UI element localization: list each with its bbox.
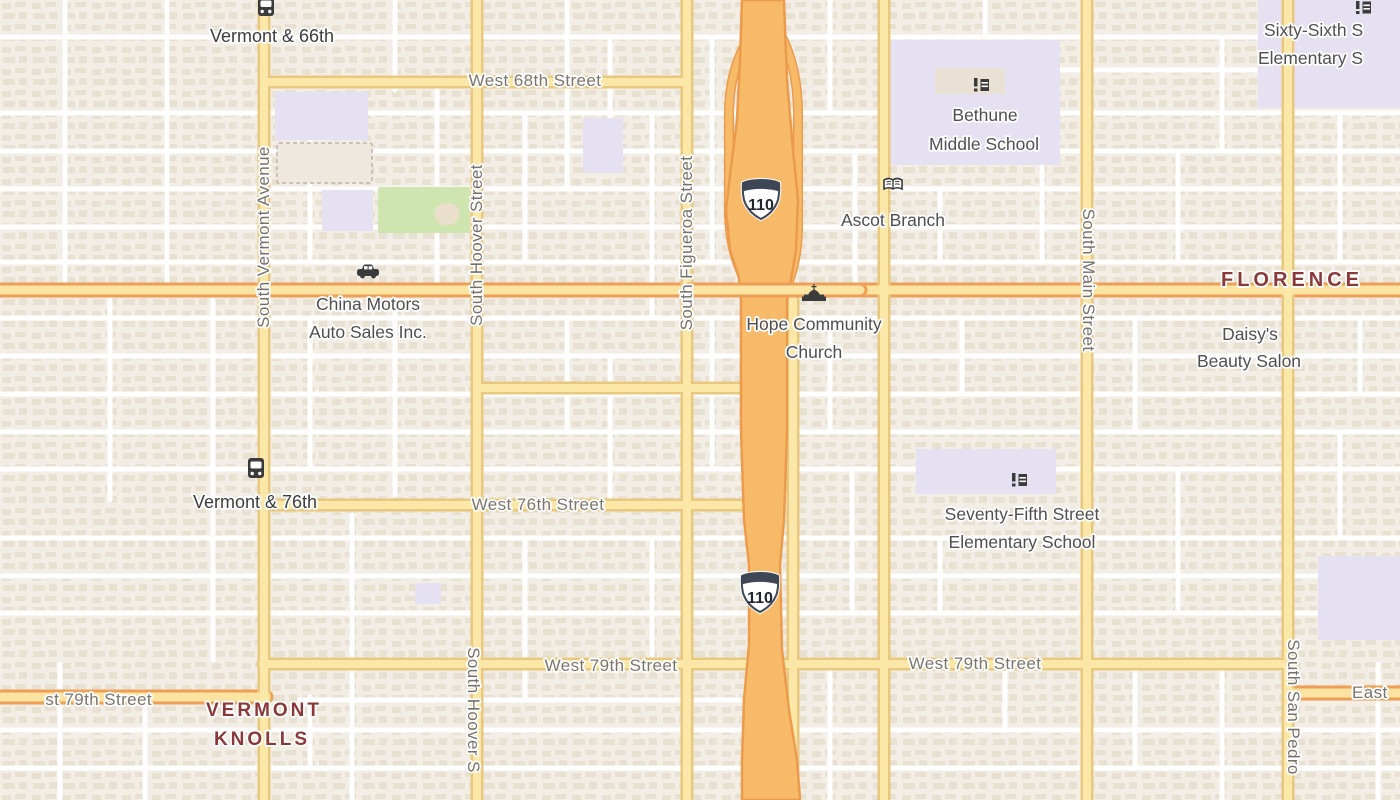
bus-icon xyxy=(258,0,274,16)
neighborhood-label-vermont-knolls-line1: VERMONT xyxy=(206,700,322,721)
street-label-west-79th-east: West 79th Street xyxy=(909,654,1042,673)
campus-area xyxy=(583,118,623,173)
street-label-south-san-pedro: South San Pedro xyxy=(1284,639,1303,774)
bus-icon xyxy=(248,458,264,478)
street-label-south-vermont: South Vermont Avenue xyxy=(254,146,273,328)
park-clearing xyxy=(434,203,460,225)
campus-area xyxy=(322,190,373,231)
poi-label-line2: Elementary School xyxy=(949,532,1096,552)
campus-area xyxy=(1318,556,1400,640)
poi-label-line1: Seventy-Fifth Street xyxy=(945,504,1100,524)
poi-label-line1: Sixty-Sixth S xyxy=(1264,20,1363,40)
transit-stop-label: Vermont & 66th xyxy=(210,26,334,46)
shield-route-number: 110 xyxy=(747,590,773,607)
street-label-south-main: South Main Street xyxy=(1079,209,1098,352)
campus-area xyxy=(275,92,368,140)
neighborhood-label-florence: FLORENCE xyxy=(1221,269,1363,291)
street-label-west-76th: West 76th Street xyxy=(472,495,605,514)
poi-label-line1: Hope Community xyxy=(746,314,881,334)
poi-label-line1: China Motors xyxy=(316,294,420,314)
school-icon xyxy=(1012,473,1027,487)
map-viewport[interactable]: 110 110 West 68th Street West 76th Stree… xyxy=(0,0,1400,800)
poi-label-line1: Daisy's xyxy=(1222,324,1278,344)
seventy-fifth-campus-area xyxy=(916,449,1056,494)
poi-label-line1: Ascot Branch xyxy=(841,210,945,230)
poi-label-line2: Auto Sales Inc. xyxy=(309,322,427,342)
school-icon xyxy=(974,78,989,92)
street-label-west-68th: West 68th Street xyxy=(469,71,602,90)
poi-label-line2: Church xyxy=(786,342,842,362)
city-blocks-base xyxy=(0,0,1400,800)
street-label-east-79th-partial: East xyxy=(1352,683,1388,702)
street-label-south-hoover: South Hoover Street xyxy=(467,164,486,326)
poi-label-line2: Middle School xyxy=(929,134,1039,154)
street-label-west-79th-west: West 79th Street xyxy=(545,656,678,675)
campus-area xyxy=(415,583,441,604)
dashed-lot-area xyxy=(277,143,372,183)
street-label-south-figueroa: South Figueroa Street xyxy=(677,156,696,331)
library-book-icon xyxy=(884,179,902,190)
poi-label-line2: Beauty Salon xyxy=(1197,351,1301,371)
poi-label-line2: Elementary S xyxy=(1258,48,1363,68)
campus-building xyxy=(935,68,1005,94)
map-canvas[interactable]: 110 110 West 68th Street West 76th Stree… xyxy=(0,0,1400,800)
poi-label-line1: Bethune xyxy=(952,105,1017,125)
neighborhood-label-vermont-knolls-line2: KNOLLS xyxy=(214,729,310,750)
street-label-south-hoover-partial: South Hoover S xyxy=(464,647,483,773)
shield-route-number: 110 xyxy=(748,197,774,214)
transit-stop-label: Vermont & 76th xyxy=(193,492,317,512)
street-label-79th-partial: st 79th Street xyxy=(45,690,152,709)
school-icon xyxy=(1356,1,1371,14)
